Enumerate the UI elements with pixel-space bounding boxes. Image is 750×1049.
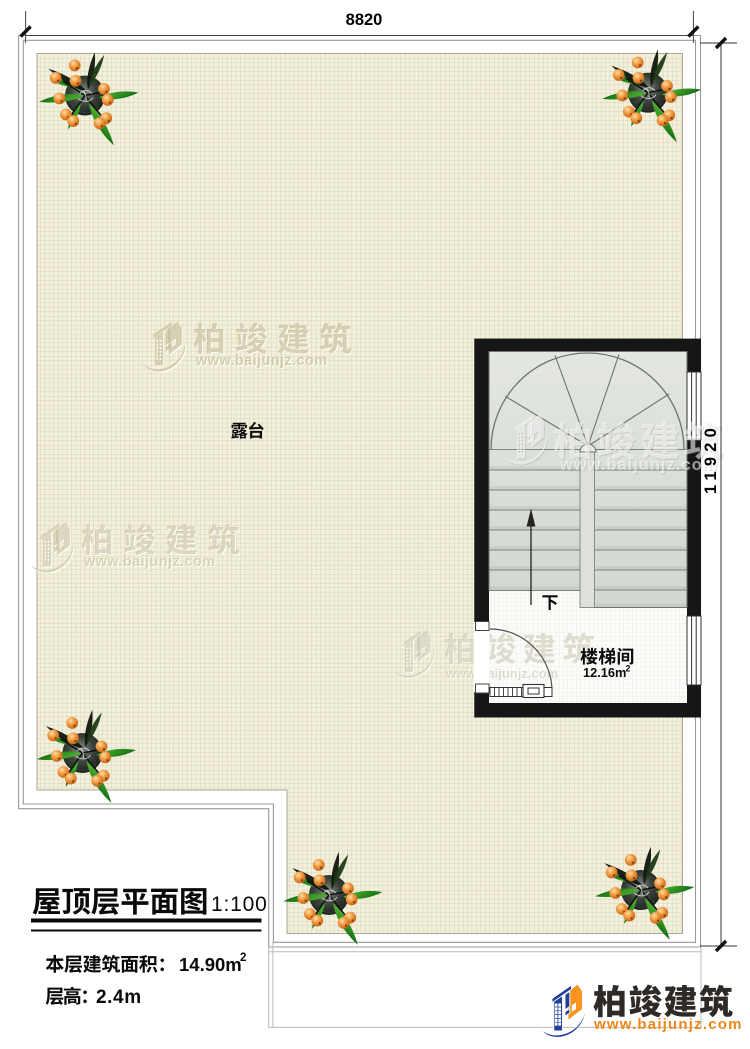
svg-text:www.baijunjz.com: www.baijunjz.com [593,1016,743,1033]
svg-text:11920: 11920 [702,423,720,494]
svg-text:2.4m: 2.4m [96,987,142,1008]
svg-text:12.16m: 12.16m [583,665,626,680]
svg-text:1:100: 1:100 [211,893,268,916]
svg-text:2: 2 [626,664,631,674]
svg-text:2: 2 [240,952,246,964]
svg-text:8820: 8820 [346,11,383,29]
svg-text:14.90m: 14.90m [179,954,242,975]
